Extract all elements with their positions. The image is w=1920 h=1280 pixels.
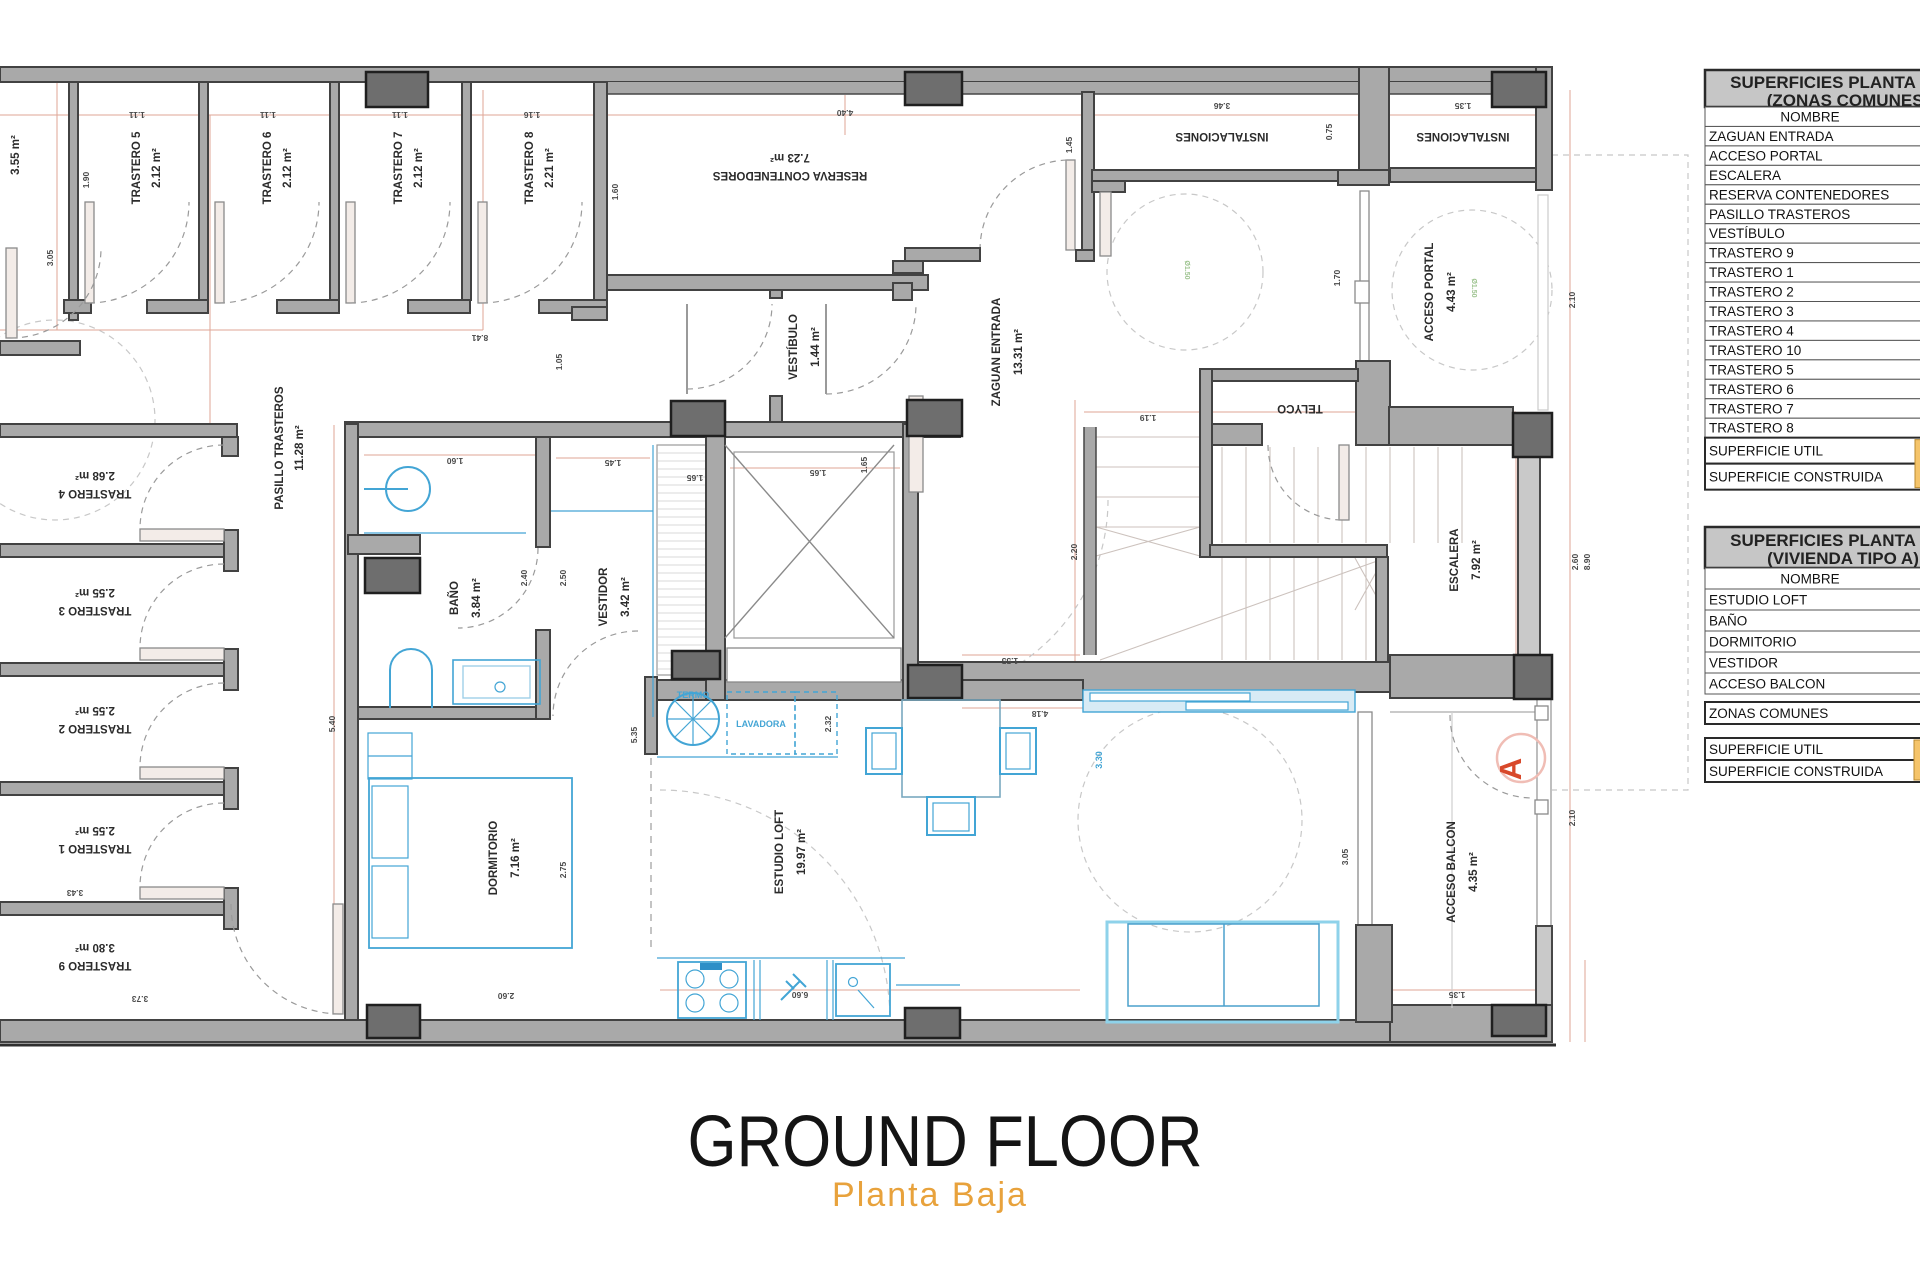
svg-text:ZONAS COMUNES: ZONAS COMUNES (1709, 706, 1828, 721)
svg-text:TRASTERO 6: TRASTERO 6 (262, 132, 274, 205)
svg-text:VESTÍBULO: VESTÍBULO (787, 314, 800, 380)
svg-text:RESERVA CONTENEDORES: RESERVA CONTENEDORES (712, 169, 867, 181)
svg-text:SUPERFICIES PLANTA: SUPERFICIES PLANTA (1730, 73, 1916, 92)
svg-text:2.12 m²: 2.12 m² (413, 148, 425, 188)
svg-text:ACCESO BALCON: ACCESO BALCON (1709, 677, 1825, 692)
svg-text:2.68 m²: 2.68 m² (75, 469, 115, 481)
svg-text:7.92 m²: 7.92 m² (1471, 540, 1483, 580)
svg-text:TRASTERO 5: TRASTERO 5 (1709, 362, 1794, 377)
svg-text:SUPERFICIE UTIL: SUPERFICIE UTIL (1709, 742, 1824, 757)
svg-text:3.73: 3.73 (131, 994, 148, 1004)
svg-text:2.32: 2.32 (823, 715, 833, 732)
svg-text:TRASTERO 1: TRASTERO 1 (1709, 265, 1794, 280)
svg-text:ESTUDIO LOFT: ESTUDIO LOFT (774, 810, 786, 894)
svg-text:6.60: 6.60 (791, 990, 808, 1000)
svg-text:7.16 m²: 7.16 m² (510, 838, 522, 878)
svg-text:1.65: 1.65 (686, 473, 703, 483)
svg-text:1.44 m²: 1.44 m² (810, 327, 822, 367)
svg-text:0.75: 0.75 (1324, 123, 1334, 140)
svg-text:Ø1.50: Ø1.50 (1470, 278, 1477, 297)
svg-text:BAÑO: BAÑO (1709, 614, 1747, 629)
svg-text:ZAGUAN ENTRADA: ZAGUAN ENTRADA (1709, 129, 1834, 144)
svg-text:TRASTERO 4: TRASTERO 4 (58, 487, 131, 499)
svg-text:PASILLO TRASTEROS: PASILLO TRASTEROS (274, 386, 286, 509)
svg-text:3.43: 3.43 (66, 888, 83, 898)
svg-text:BAÑO: BAÑO (448, 581, 461, 615)
svg-text:(VIVIENDA TIPO A): (VIVIENDA TIPO A) (1767, 549, 1919, 568)
svg-text:2.60: 2.60 (1570, 553, 1580, 570)
svg-text:4.35 m²: 4.35 m² (1468, 852, 1480, 892)
svg-text:SUPERFICIE CONSTRUIDA: SUPERFICIE CONSTRUIDA (1709, 470, 1883, 485)
svg-text:1.55: 1.55 (1001, 656, 1018, 666)
svg-text:1.05: 1.05 (554, 353, 564, 370)
svg-text:1.70: 1.70 (1332, 269, 1342, 286)
svg-text:7.23 m²: 7.23 m² (770, 151, 810, 163)
svg-text:TELYCO: TELYCO (1277, 402, 1323, 414)
svg-text:ESCALERA: ESCALERA (1449, 528, 1461, 591)
svg-text:ESCALERA: ESCALERA (1709, 168, 1781, 183)
svg-text:PASILLO TRASTEROS: PASILLO TRASTEROS (1709, 207, 1850, 222)
svg-text:TRASTERO 2: TRASTERO 2 (59, 722, 132, 734)
svg-text:1.65: 1.65 (859, 456, 869, 473)
svg-text:VESTIDOR: VESTIDOR (1709, 656, 1778, 671)
svg-text:2.21 m²: 2.21 m² (544, 148, 556, 188)
svg-text:3.55 m²: 3.55 m² (10, 135, 22, 175)
svg-text:2.55 m²: 2.55 m² (75, 704, 115, 716)
svg-text:4.18: 4.18 (1031, 709, 1048, 719)
svg-text:TRASTERO 7: TRASTERO 7 (393, 132, 405, 205)
svg-text:19.97 m²: 19.97 m² (796, 829, 808, 875)
svg-text:4.40: 4.40 (836, 108, 853, 118)
svg-text:2.40: 2.40 (519, 569, 529, 586)
svg-text:3.84 m²: 3.84 m² (471, 578, 483, 618)
svg-text:SUPERFICIE UTIL: SUPERFICIE UTIL (1709, 444, 1824, 459)
svg-text:3.30: 3.30 (1094, 751, 1104, 769)
svg-text:ACCESO BALCON: ACCESO BALCON (1446, 821, 1458, 923)
svg-text:TRASTERO 2: TRASTERO 2 (1709, 285, 1794, 300)
svg-text:3.05: 3.05 (1340, 848, 1350, 865)
svg-text:ACCESO PORTAL: ACCESO PORTAL (1424, 243, 1436, 342)
svg-text:1.11: 1.11 (129, 110, 145, 120)
svg-text:TRASTERO 3: TRASTERO 3 (1709, 304, 1794, 319)
svg-text:TERMO: TERMO (677, 690, 710, 700)
svg-text:TRASTERO 10: TRASTERO 10 (1709, 343, 1801, 358)
svg-text:SUPERFICIES PLANTA: SUPERFICIES PLANTA (1730, 531, 1916, 550)
svg-text:1.45: 1.45 (604, 458, 621, 468)
svg-text:TRASTERO 8: TRASTERO 8 (524, 131, 536, 204)
svg-text:2.55 m²: 2.55 m² (75, 586, 115, 598)
svg-text:Planta Baja: Planta Baja (832, 1176, 1028, 1214)
svg-text:3.05: 3.05 (45, 249, 55, 266)
svg-text:2.55 m²: 2.55 m² (75, 824, 115, 836)
svg-text:4.43 m²: 4.43 m² (1446, 272, 1458, 312)
svg-text:1.90: 1.90 (81, 171, 91, 188)
svg-text:2.12 m²: 2.12 m² (282, 148, 294, 188)
svg-text:TRASTERO 10: TRASTERO 10 (0, 115, 3, 194)
svg-text:TRASTERO 9: TRASTERO 9 (59, 959, 132, 971)
svg-text:3.46: 3.46 (1213, 101, 1230, 111)
svg-text:TRASTERO 9: TRASTERO 9 (1709, 246, 1794, 261)
svg-text:1.11: 1.11 (260, 110, 276, 120)
svg-text:1.19: 1.19 (1139, 413, 1156, 423)
svg-text:DORMITORIO: DORMITORIO (488, 821, 500, 896)
svg-text:INSTALACIONES: INSTALACIONES (1175, 130, 1268, 142)
svg-text:1.16: 1.16 (523, 110, 540, 120)
svg-text:TRASTERO 5: TRASTERO 5 (131, 131, 143, 204)
svg-text:2.10: 2.10 (1567, 291, 1577, 308)
svg-text:TRASTERO 7: TRASTERO 7 (1709, 401, 1794, 416)
svg-text:A: A (1493, 758, 1528, 780)
svg-text:TRASTERO 1: TRASTERO 1 (58, 842, 131, 854)
svg-text:GROUND FLOOR: GROUND FLOOR (688, 1102, 1203, 1182)
svg-text:NOMBRE: NOMBRE (1780, 572, 1839, 587)
svg-text:TRASTERO 4: TRASTERO 4 (1709, 323, 1794, 338)
svg-text:1.65: 1.65 (809, 468, 826, 478)
svg-text:11.28 m²: 11.28 m² (294, 425, 306, 471)
svg-text:1.35: 1.35 (1454, 101, 1471, 111)
svg-text:8.90: 8.90 (1582, 553, 1592, 570)
svg-text:2.20: 2.20 (1069, 543, 1079, 560)
svg-text:3.80 m²: 3.80 m² (75, 941, 115, 953)
svg-text:1.60: 1.60 (610, 183, 620, 200)
svg-text:SUPERFICIE CONSTRUIDA: SUPERFICIE CONSTRUIDA (1709, 764, 1883, 779)
svg-text:TRASTERO 3: TRASTERO 3 (59, 604, 132, 616)
svg-text:1.45: 1.45 (1064, 136, 1074, 153)
svg-text:Ø1.50: Ø1.50 (1183, 260, 1190, 279)
svg-text:NOMBRE: NOMBRE (1780, 110, 1839, 125)
svg-text:VESTIDOR: VESTIDOR (598, 567, 610, 626)
svg-text:2.75: 2.75 (558, 861, 568, 878)
svg-text:2.12 m²: 2.12 m² (151, 148, 163, 188)
svg-text:ACCESO PORTAL: ACCESO PORTAL (1709, 148, 1823, 163)
svg-text:1.11: 1.11 (392, 110, 408, 120)
svg-text:ZAGUAN ENTRADA: ZAGUAN ENTRADA (991, 298, 1003, 407)
svg-text:8.41: 8.41 (471, 333, 488, 343)
svg-text:3.42 m²: 3.42 m² (620, 577, 632, 617)
svg-text:INSTALACIONES: INSTALACIONES (1416, 130, 1509, 142)
svg-text:RESERVA CONTENEDORES: RESERVA CONTENEDORES (1709, 187, 1889, 202)
svg-text:DORMITORIO: DORMITORIO (1709, 635, 1797, 650)
svg-text:2.10: 2.10 (1567, 809, 1577, 826)
svg-text:5.35: 5.35 (629, 726, 639, 743)
svg-text:5.40: 5.40 (327, 715, 337, 732)
svg-text:2.60: 2.60 (497, 991, 514, 1001)
svg-text:1.60: 1.60 (446, 456, 463, 466)
svg-text:TRASTERO 6: TRASTERO 6 (1709, 382, 1794, 397)
svg-text:LAVADORA: LAVADORA (736, 719, 786, 729)
svg-text:TRASTERO 8: TRASTERO 8 (1709, 421, 1794, 436)
svg-text:13.31 m²: 13.31 m² (1013, 329, 1025, 375)
svg-text:ESTUDIO LOFT: ESTUDIO LOFT (1709, 593, 1807, 608)
svg-text:VESTÍBULO: VESTÍBULO (1709, 226, 1785, 241)
svg-text:2.50: 2.50 (558, 569, 568, 586)
svg-text:1.35: 1.35 (1448, 990, 1465, 1000)
